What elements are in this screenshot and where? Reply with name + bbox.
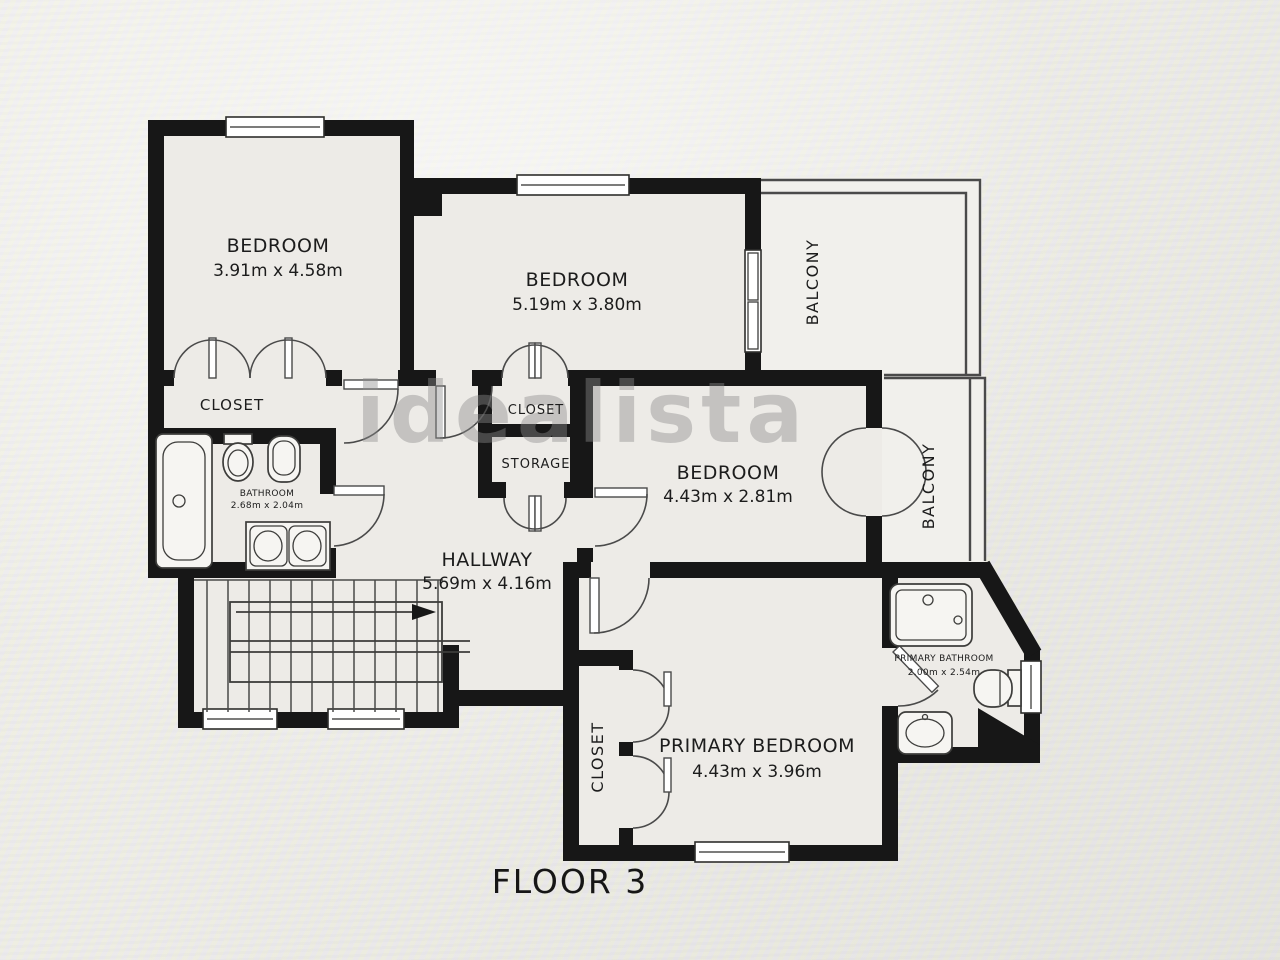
floor-plan: idealista BEDROOM 3.91m x 4.58m BEDROOM … bbox=[0, 0, 1280, 960]
bathroom-dims: 2.68m x 2.04m bbox=[231, 501, 304, 511]
storage-label: STORAGE bbox=[502, 457, 571, 472]
double-sink bbox=[246, 522, 330, 570]
primary-bedroom-dims: 4.43m x 3.96m bbox=[692, 762, 822, 782]
bathroom-label: BATHROOM bbox=[240, 489, 294, 499]
closet-middle-label: CLOSET bbox=[508, 403, 565, 418]
sliding-door-balcony bbox=[745, 250, 761, 352]
window-bedroom2 bbox=[517, 175, 629, 195]
balcony-right-label: BALCONY bbox=[919, 443, 938, 530]
balcony-top-label: BALCONY bbox=[803, 239, 822, 326]
window-bedroom1 bbox=[226, 117, 324, 137]
bathtub bbox=[156, 434, 212, 568]
bedroom2-dims: 5.19m x 3.80m bbox=[512, 295, 642, 315]
toilet bbox=[223, 434, 253, 481]
sink-primary bbox=[898, 712, 952, 754]
window-primary-bedroom bbox=[695, 842, 789, 862]
bedroom1-label: BEDROOM bbox=[227, 235, 330, 257]
primary-bathroom-dims: 2.00m x 2.54m bbox=[908, 668, 981, 678]
bidet bbox=[268, 436, 300, 482]
closet-primary-label: CLOSET bbox=[588, 721, 607, 792]
hallway-dims: 5.69m x 4.16m bbox=[422, 574, 552, 594]
shower bbox=[890, 584, 972, 646]
window-stairs-2 bbox=[328, 709, 404, 729]
closet-bedroom1-label: CLOSET bbox=[200, 396, 264, 414]
bedroom2-label: BEDROOM bbox=[526, 269, 629, 291]
floorplan-screenshot: idealista BEDROOM 3.91m x 4.58m BEDROOM … bbox=[0, 0, 1280, 960]
window-stairs-1 bbox=[203, 709, 277, 729]
hallway-label: HALLWAY bbox=[441, 549, 532, 571]
floor-caption: FLOOR 3 bbox=[492, 862, 649, 901]
bedroom3-dims: 4.43m x 2.81m bbox=[663, 487, 793, 507]
watermark: idealista bbox=[356, 364, 808, 462]
bedroom1-dims: 3.91m x 4.58m bbox=[213, 261, 343, 281]
primary-bedroom-label: PRIMARY BEDROOM bbox=[659, 735, 855, 757]
bedroom3-label: BEDROOM bbox=[677, 462, 780, 484]
window-primary-bathroom bbox=[1021, 661, 1041, 713]
toilet-primary bbox=[974, 670, 1021, 707]
primary-bathroom-label: PRIMARY BATHROOM bbox=[894, 654, 993, 664]
